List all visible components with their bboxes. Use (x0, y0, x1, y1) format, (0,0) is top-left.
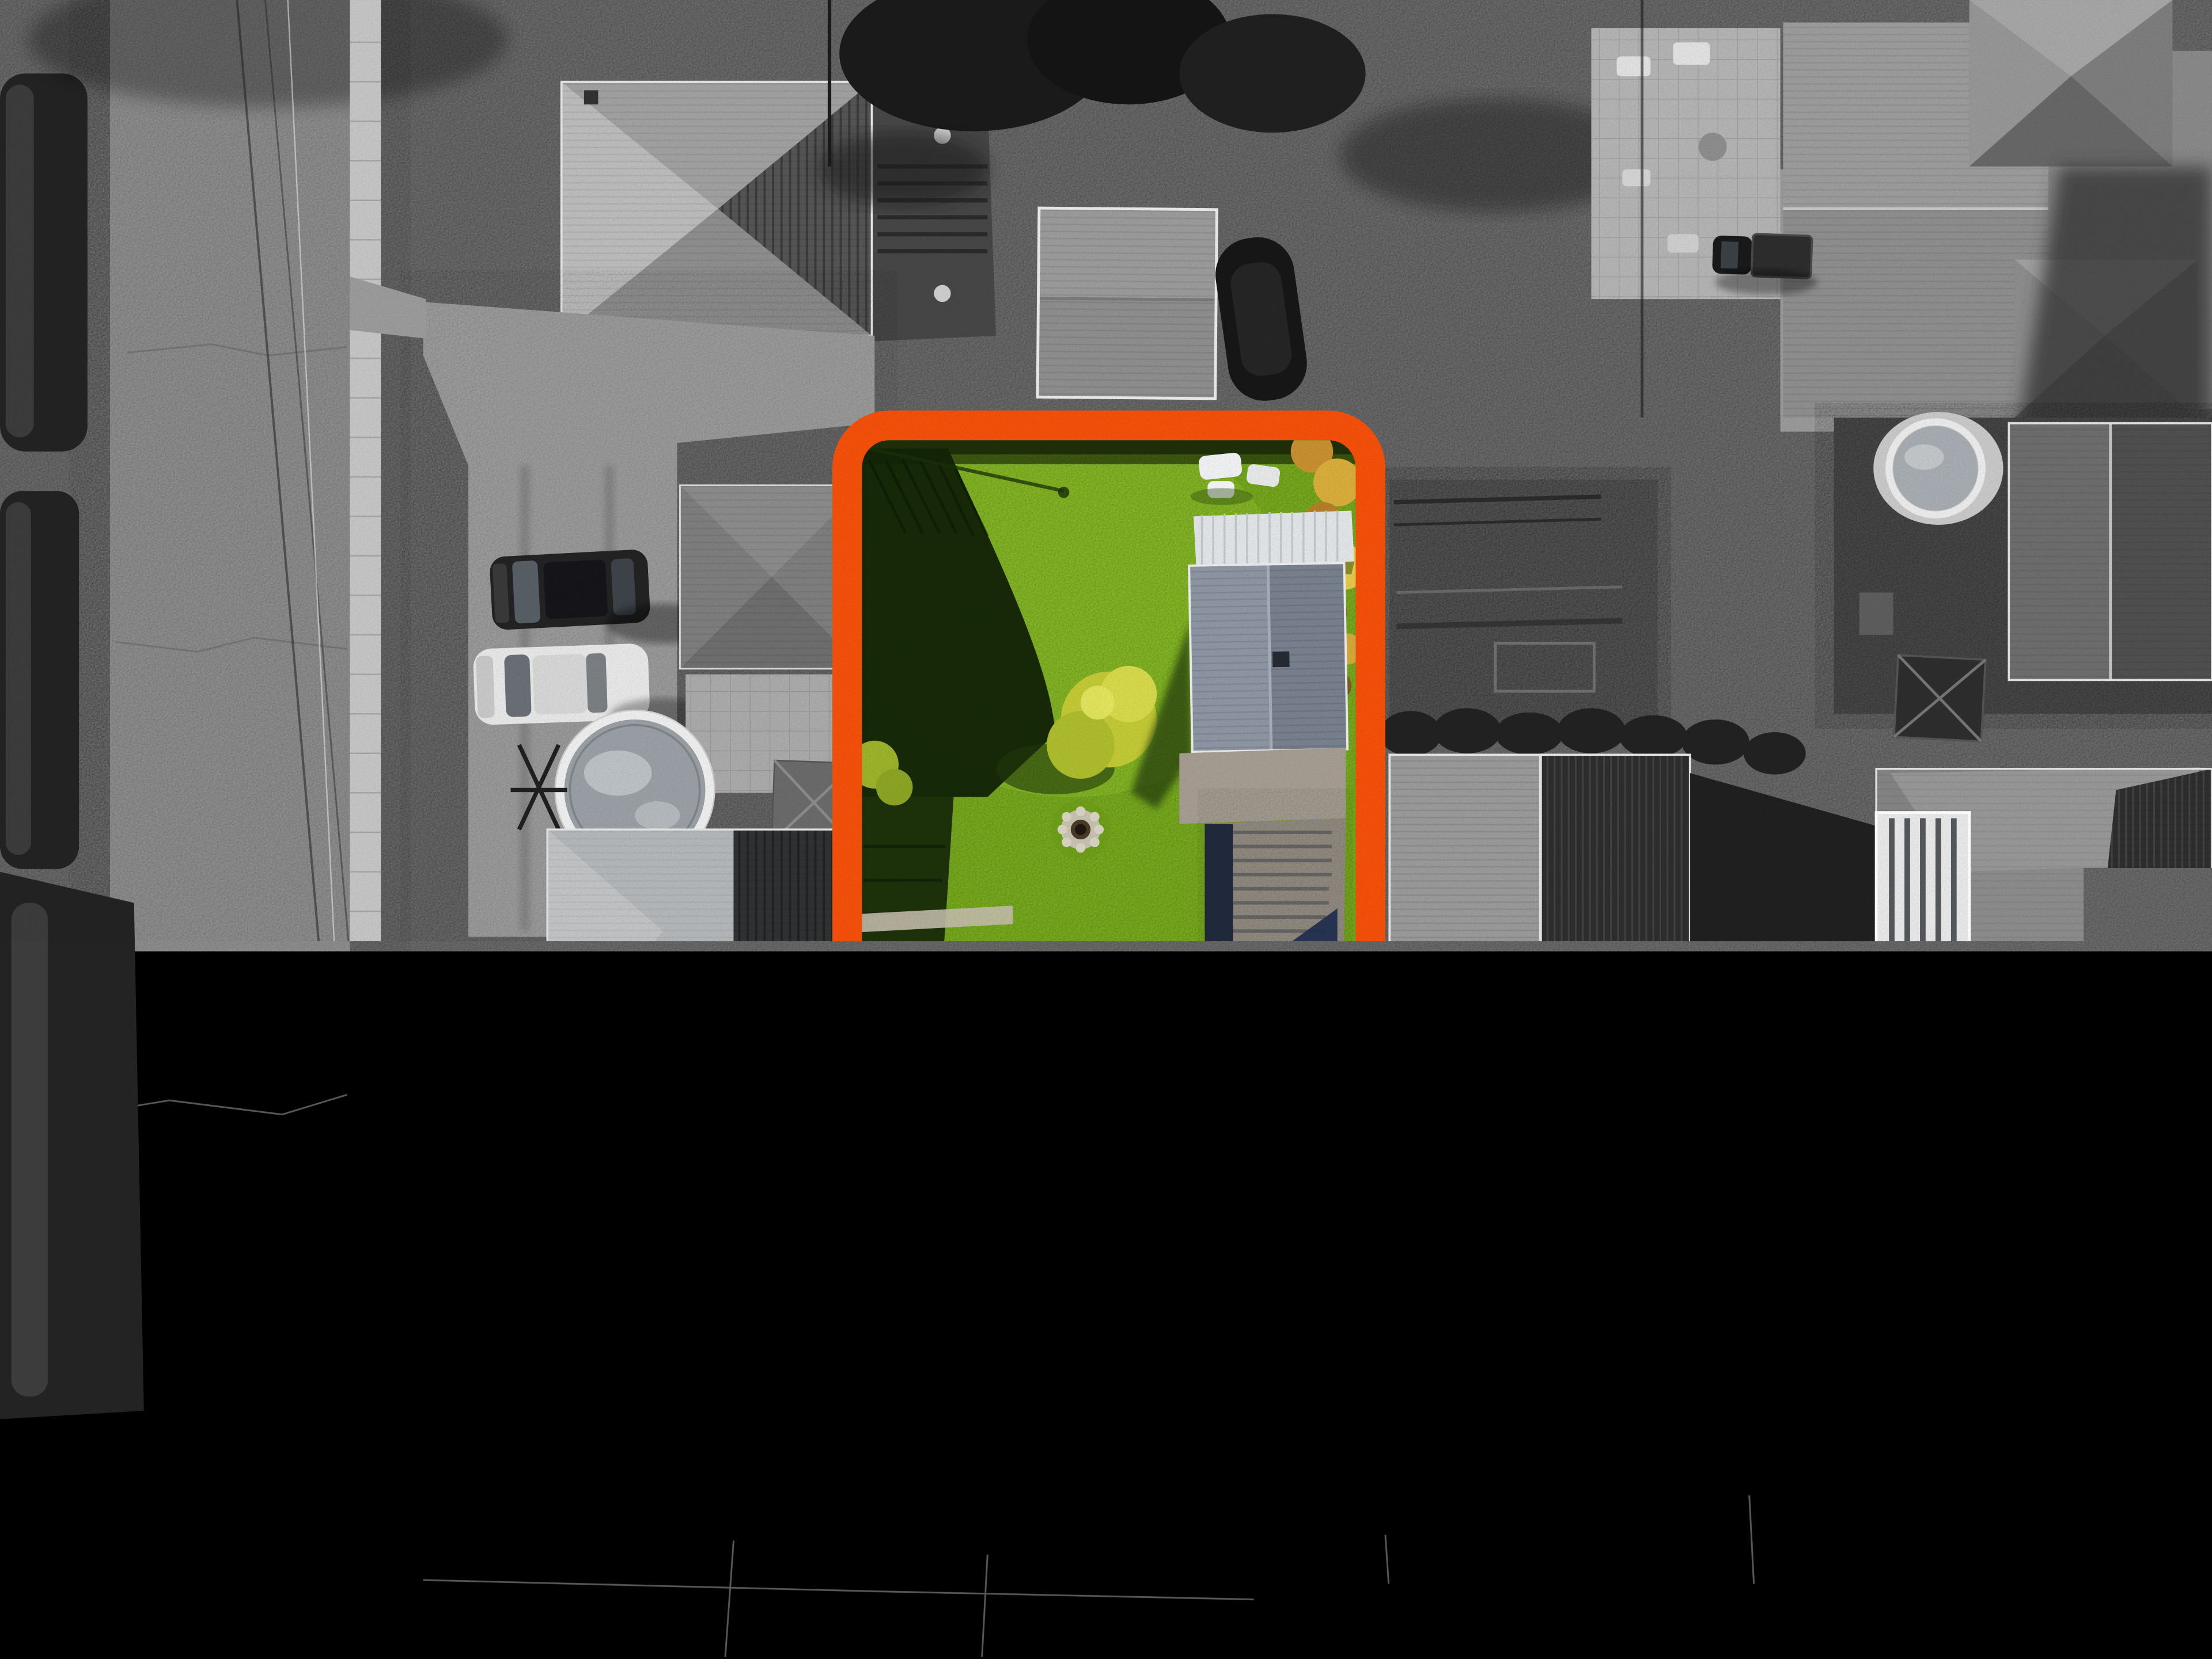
photo-grain (0, 0, 2212, 1659)
aerial-photo (0, 0, 2212, 1659)
